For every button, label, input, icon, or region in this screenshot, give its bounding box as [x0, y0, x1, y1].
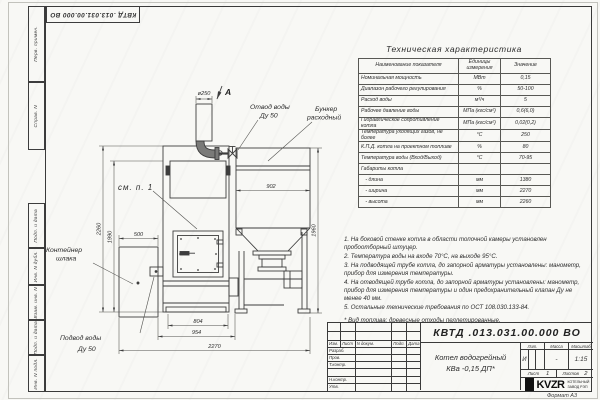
- cell: [392, 355, 407, 362]
- water-inlet-label-line1: Подвод воды: [60, 334, 101, 342]
- boiler-body: [163, 146, 230, 312]
- sheet-label: Лист: [528, 371, 540, 376]
- row-value: 80: [501, 142, 551, 153]
- row-name: Температура уходящих газов, не более: [359, 130, 459, 142]
- sheets-label: Листов: [562, 371, 578, 376]
- tech-table-title: Техническая характеристика: [356, 44, 552, 54]
- header-units: Единицы измерения: [459, 59, 501, 74]
- cell: [392, 369, 407, 377]
- row-units: °С: [459, 153, 501, 164]
- company-logo-text: KVZR: [537, 379, 565, 391]
- table-row: Рабочее давление водыМПа (кгс/см²)0,6(6,…: [359, 107, 551, 118]
- lit-mass-scale-header-row: Лит. Масса Масштаб: [521, 343, 593, 350]
- role-tkontr: Т.контр.: [328, 362, 356, 369]
- format-note: Формат А3: [534, 393, 590, 399]
- slag-label-line1: Контейнер: [46, 246, 82, 254]
- row-name: К.П.Д. котла на проектном топливе: [359, 142, 459, 153]
- water-outlet-label-line2: Ду 50: [259, 113, 278, 120]
- lit-cell-empty: [536, 350, 544, 369]
- dim-chimney-diameter: ø250: [198, 91, 212, 97]
- sheet-row: Лист 1 Листов 2: [521, 370, 593, 378]
- dimensions: ø250 500 902 2260 1990 1960 804: [97, 91, 323, 354]
- product-name-line2: КВа -0,15 ДП*: [421, 363, 520, 374]
- row-units: МВт: [459, 74, 501, 85]
- role-row: Утв.: [328, 384, 420, 391]
- mass-value: -: [545, 350, 569, 370]
- row-units: °С: [459, 130, 501, 142]
- dim-bunker-height: 1960: [312, 223, 318, 236]
- water-inlet-label-line2: Ду 50: [77, 346, 96, 353]
- change-row-empty: [328, 323, 420, 332]
- title-block-change-table: Изм. Лист N докум. Подп. Дата Разраб. Пр…: [328, 323, 421, 390]
- header-name: Наименование показателя: [359, 59, 459, 74]
- cell: [356, 355, 393, 362]
- role-nkontr: Н.контр.: [328, 377, 356, 384]
- note-3: 3. На подводящей трубе котла, до запорно…: [344, 262, 590, 278]
- row-value: 0,6(6,0): [501, 107, 551, 118]
- row-units: %: [459, 85, 501, 96]
- dim-base-width-1: 804: [193, 319, 202, 325]
- table-row: К.П.Д. котла на проектном топливе%80: [359, 142, 551, 153]
- title-block-designation-cell: КВТД .013.031.00.000 ВО: [421, 323, 593, 343]
- change-header-podp: Подп.: [392, 341, 407, 348]
- role-row: Т.контр.: [328, 362, 420, 369]
- tech-table-header-row: Наименование показателя Единицы измерени…: [359, 59, 551, 74]
- role-row: Пров.: [328, 355, 420, 362]
- sheets-cell: Листов 2: [557, 370, 593, 378]
- sheets-number: 2: [584, 371, 587, 377]
- cell: [356, 323, 393, 332]
- sheet-cell: Лист 1: [521, 370, 557, 378]
- cell: [407, 369, 420, 377]
- title-block: Изм. Лист N докум. Подп. Дата Разраб. Пр…: [327, 322, 592, 392]
- row-units: мм: [459, 175, 501, 186]
- cell: [392, 377, 407, 384]
- cell: [407, 362, 420, 369]
- cell: [407, 377, 420, 384]
- cell: [356, 384, 393, 391]
- role-row: [328, 369, 420, 377]
- row-units: м³/ч: [459, 96, 501, 107]
- dim-total-width: 2270: [207, 344, 221, 350]
- table-row: - ширинамм2270: [359, 186, 551, 197]
- cell: [356, 348, 393, 355]
- change-header-list: Лист: [341, 341, 356, 348]
- row-name: Диапазон рабочего регулирования: [359, 85, 459, 96]
- lit-header: Лит.: [521, 343, 545, 350]
- dim-base-width-2: 954: [192, 330, 201, 336]
- tech-characteristics: Техническая характеристика Наименование …: [356, 44, 552, 208]
- row-units: МПа (кгс/см²): [459, 107, 501, 118]
- cell: [392, 384, 407, 391]
- role-prov: Пров.: [328, 355, 356, 362]
- row-name: Рабочее давление воды: [359, 107, 459, 118]
- lit-cell-empty: [529, 350, 537, 369]
- row-name: Габариты котла: [359, 164, 459, 175]
- table-row: Расход водым³/ч5: [359, 96, 551, 107]
- dim-boiler-height-2: 1990: [108, 230, 114, 243]
- row-name: Номинальная мощность: [359, 74, 459, 85]
- table-row: - длинамм1380: [359, 175, 551, 186]
- chimney-and-outlet: [196, 104, 237, 160]
- tech-table: Наименование показателя Единицы измерени…: [358, 58, 551, 208]
- cell: [356, 362, 393, 369]
- row-value: 50-100: [501, 85, 551, 96]
- cell: [407, 332, 420, 341]
- kvzr-logo-mark-icon: [525, 378, 534, 391]
- cell: [356, 332, 393, 341]
- mass-header: Масса: [545, 343, 569, 350]
- role-row: Разраб.: [328, 348, 420, 355]
- change-header-izm: Изм.: [328, 341, 341, 348]
- dim-slag-width: 500: [134, 232, 144, 238]
- slag-label-line2: шлака: [56, 256, 76, 263]
- role-utv: Утв.: [328, 384, 356, 391]
- cell: [407, 348, 420, 355]
- row-name: - ширина: [359, 186, 459, 197]
- scale-header: Масштаб: [569, 343, 593, 350]
- bunker-label-line2: расходный: [306, 114, 341, 122]
- cell: [341, 323, 356, 332]
- row-value: 0,02(0,2): [501, 118, 551, 130]
- row-value: 0,15: [501, 74, 551, 85]
- company-logo-row: KVZR КОТЕЛЬНЫЙ ЗАВОД РЭП: [521, 378, 593, 391]
- row-name: Расход воды: [359, 96, 459, 107]
- title-block-product-name: Котел водогрейный КВа -0,15 ДП*: [421, 343, 521, 390]
- note-5: 5. Остальные технические требования по О…: [344, 304, 590, 312]
- row-units: мм: [459, 186, 501, 197]
- table-row: Температура воды (Вход/Выход)°С70-95: [359, 153, 551, 164]
- view-arrow-a: А: [217, 86, 231, 99]
- table-row: - высотамм2260: [359, 197, 551, 208]
- header-value: Значение: [501, 59, 551, 74]
- table-row: Температура уходящих газов, не более°С25…: [359, 130, 551, 142]
- row-value: 250: [501, 130, 551, 142]
- company-subtitle: КОТЕЛЬНЫЙ ЗАВОД РЭП: [568, 380, 590, 388]
- cell: [407, 355, 420, 362]
- change-header-ndoc: N докум.: [356, 341, 393, 348]
- row-name: - длина: [359, 175, 459, 186]
- cell: [407, 384, 420, 391]
- product-name-line1: Котел водогрейный: [421, 352, 520, 363]
- notes-block: 1. На боковой стенке котла в области топ…: [344, 236, 590, 326]
- row-value: [501, 164, 551, 175]
- table-row: Номинальная мощностьМВт0,15: [359, 74, 551, 85]
- lit-cells: И: [521, 350, 545, 370]
- row-value: 70-95: [501, 153, 551, 164]
- change-header-data: Дата: [407, 341, 420, 348]
- cell: [392, 348, 407, 355]
- water-outlet-label-line1: Отвод воды: [250, 103, 290, 111]
- table-row: Габариты котла: [359, 164, 551, 175]
- cell: [356, 377, 393, 384]
- row-units: мм: [459, 197, 501, 208]
- bunker-label-line1: Бункер: [315, 106, 337, 113]
- fuel-bunker: [229, 148, 310, 313]
- role-empty: [328, 369, 356, 377]
- see-note-label: см. п. 1: [118, 183, 153, 192]
- scale-value: 1:15: [569, 350, 593, 370]
- row-value: 2270: [501, 186, 551, 197]
- row-value: 1380: [501, 175, 551, 186]
- dim-bunker-width: 902: [266, 184, 276, 190]
- row-units: %: [459, 142, 501, 153]
- slag-container: [119, 247, 163, 317]
- row-name: - высота: [359, 197, 459, 208]
- lit-value: И: [521, 350, 529, 369]
- row-name: Температура воды (Вход/Выход): [359, 153, 459, 164]
- drawing-number: КВТД .013.031.00.000 ВО: [433, 327, 581, 339]
- row-units: МПа (кгс/см²): [459, 118, 501, 130]
- row-value: 2260: [501, 197, 551, 208]
- cell: [341, 332, 356, 341]
- sheet-number: 1: [546, 371, 549, 377]
- cell: [328, 323, 341, 332]
- row-value: 5: [501, 96, 551, 107]
- cell: [392, 362, 407, 369]
- row-name: Гидравлическое сопротивление котла: [359, 118, 459, 130]
- change-header-row: Изм. Лист N докум. Подп. Дата: [328, 341, 420, 348]
- title-block-right: Лит. Масса Масштаб И - 1:15 Лист 1: [521, 343, 593, 390]
- company-subtitle-line2: ЗАВОД РЭП: [568, 385, 590, 389]
- role-razrab: Разраб.: [328, 348, 356, 355]
- table-row: Гидравлическое сопротивление котлаМПа (к…: [359, 118, 551, 130]
- cell: [392, 323, 407, 332]
- note-2: 2. Температура воды на входе 70°С, на вы…: [344, 253, 590, 261]
- table-row: Диапазон рабочего регулирования%50-100: [359, 85, 551, 96]
- note-4: 4. На отводящей трубе котла, до запорной…: [344, 279, 590, 302]
- dim-boiler-height: 2260: [97, 222, 103, 236]
- cell: [328, 332, 341, 341]
- view-label-a: А: [224, 87, 231, 97]
- role-row: Н.контр.: [328, 377, 420, 384]
- row-units: [459, 164, 501, 175]
- cell: [407, 323, 420, 332]
- note-1: 1. На боковой стенке котла в области топ…: [344, 236, 590, 252]
- change-row-empty: [328, 332, 420, 341]
- cell: [356, 369, 393, 377]
- lit-mass-scale-value-row: И - 1:15: [521, 350, 593, 370]
- cell: [392, 332, 407, 341]
- drawing-sheet: Перв. примен. Справ. N Подп. и дата Инв.…: [0, 0, 600, 400]
